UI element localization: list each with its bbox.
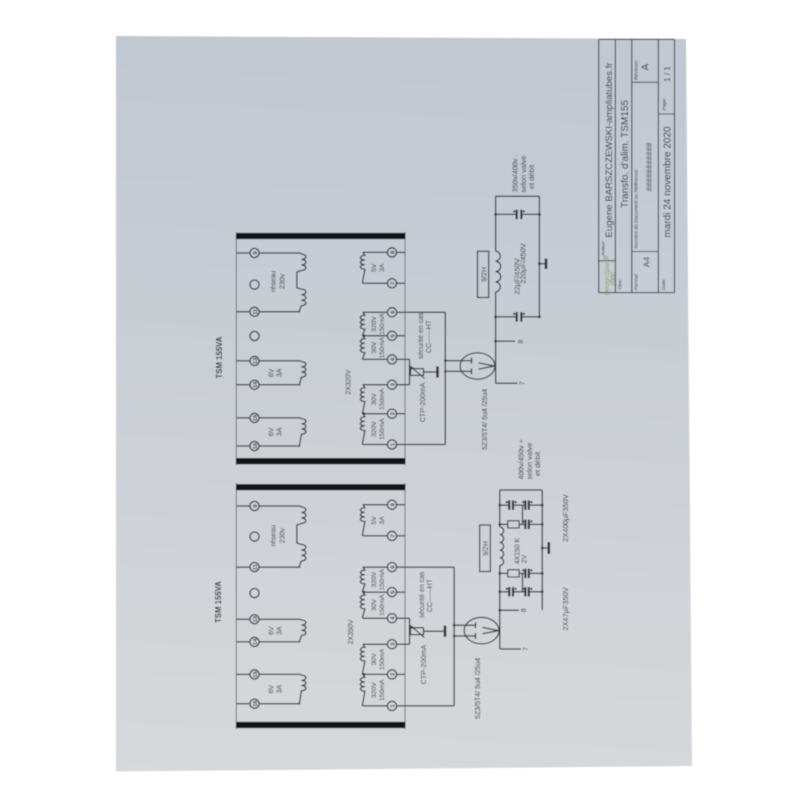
svg-text:CTP-200mA: CTP-200mA [418, 383, 427, 423]
svg-text:CC——HT: CC——HT [427, 578, 434, 612]
svg-text:150mA: 150mA [379, 336, 386, 358]
svg-text:6V: 6V [269, 427, 276, 436]
svg-text:mardi 24 novembre 2020: mardi 24 novembre 2020 [663, 126, 674, 238]
svg-text:11: 11 [253, 309, 259, 315]
svg-text:11: 11 [253, 564, 259, 570]
svg-text:###########: ########### [645, 142, 654, 191]
svg-text:6V: 6V [269, 684, 276, 693]
svg-text:15: 15 [253, 671, 259, 677]
svg-text:3A: 3A [277, 626, 284, 635]
svg-text:Page:: Page: [662, 97, 668, 110]
svg-text:8: 8 [518, 340, 525, 344]
svg-text:7: 7 [390, 534, 396, 537]
svg-text:150mA: 150mA [379, 679, 386, 701]
svg-text:30V: 30V [371, 599, 378, 612]
svg-text:2: 2 [390, 673, 396, 676]
svg-text:150mA: 150mA [379, 388, 386, 410]
svg-text:Numéro du Document ou Référenc: Numéro du Document ou Référence: [634, 168, 640, 249]
svg-text:3A: 3A [277, 427, 284, 436]
svg-text:30V: 30V [371, 653, 378, 666]
svg-text:5: 5 [390, 591, 396, 594]
svg-text:6: 6 [390, 566, 396, 569]
svg-text:6V: 6V [269, 368, 276, 377]
svg-text:6V: 6V [269, 626, 276, 635]
svg-text:5Z3/5T4/ 5u4 /25u4: 5Z3/5T4/ 5u4 /25u4 [475, 658, 482, 719]
svg-text:3A: 3A [379, 263, 386, 272]
svg-text:150mA: 150mA [379, 594, 386, 616]
svg-text:1: 1 [390, 704, 396, 707]
svg-text:8: 8 [521, 608, 528, 612]
svg-text:2X400µF350V: 2X400µF350V [561, 494, 570, 541]
svg-text:9/2H: 9/2H [481, 267, 488, 282]
svg-text:sécurité en cas: sécurité en cas [419, 571, 426, 618]
svg-text:320V: 320V [371, 316, 378, 332]
svg-text:DesignSpark: DesignSpark [604, 258, 611, 295]
svg-text:réseau: réseau [271, 525, 278, 547]
svg-text:2X47µF350V: 2X47µF350V [561, 587, 570, 630]
svg-text:150mA: 150mA [379, 648, 386, 670]
svg-text:320V: 320V [371, 682, 378, 698]
svg-text:5: 5 [390, 334, 396, 337]
svg-text:Révision:: Révision: [634, 59, 640, 80]
svg-text:2X350V: 2X350V [348, 619, 355, 644]
svg-text:320V: 320V [371, 421, 378, 437]
svg-text:150mA: 150mA [379, 313, 386, 335]
svg-text:30V: 30V [371, 393, 378, 406]
svg-text:Transfo. d'alim. TSM155: Transfo. d'alim. TSM155 [620, 100, 631, 209]
svg-text:Eugene BARSZCZEWSKI-ampliatube: Eugene BARSZCZEWSKI-ampliatubes.fr [604, 62, 615, 238]
svg-text:150mA: 150mA [379, 568, 386, 590]
svg-text:5V: 5V [371, 263, 378, 272]
svg-text:A4: A4 [642, 257, 652, 268]
svg-text:220µF/450V: 220µF/450V [519, 243, 528, 283]
svg-text:3A: 3A [277, 684, 284, 693]
svg-text:8: 8 [390, 503, 396, 506]
svg-text:5V: 5V [371, 516, 378, 525]
svg-text:TSM 155VA: TSM 155VA [215, 336, 224, 378]
svg-text:7: 7 [390, 282, 396, 285]
svg-text:2V: 2V [522, 554, 529, 563]
svg-text:Date:: Date: [661, 278, 667, 290]
svg-text:16: 16 [253, 443, 259, 449]
svg-text:sécurité en cas: sécurité en cas [418, 312, 425, 359]
svg-text:réseau: réseau [271, 271, 278, 293]
svg-text:Titre:: Titre: [618, 278, 624, 290]
svg-text:5Z3/5T4/ 5u4 /25u4: 5Z3/5T4/ 5u4 /25u4 [482, 389, 489, 450]
svg-text:3: 3 [390, 383, 396, 386]
svg-text:A: A [641, 63, 652, 70]
svg-text:320V: 320V [371, 571, 378, 587]
svg-text:2X320V: 2X320V [346, 369, 353, 394]
svg-text:7: 7 [520, 381, 527, 385]
svg-text:30V: 30V [371, 341, 378, 354]
svg-text:CTP-200mA: CTP-200mA [419, 645, 428, 685]
svg-text:6: 6 [390, 311, 396, 314]
svg-text:16: 16 [253, 701, 259, 707]
svg-text:150mA: 150mA [379, 418, 386, 440]
svg-text:3A: 3A [379, 516, 386, 525]
svg-text:9: 9 [253, 251, 259, 254]
svg-text:15: 15 [253, 415, 259, 421]
svg-text:14: 14 [253, 381, 259, 388]
svg-text:230v: 230v [279, 528, 286, 544]
svg-text:7: 7 [523, 647, 530, 651]
svg-text:3A: 3A [277, 368, 284, 377]
svg-text:14: 14 [253, 638, 259, 645]
svg-text:et débit: et débit [527, 165, 536, 189]
svg-text:2: 2 [390, 412, 396, 415]
svg-text:8: 8 [390, 251, 396, 254]
svg-text:Format:: Format: [634, 273, 640, 290]
svg-text:TSM 155VA: TSM 155VA [214, 581, 223, 623]
svg-text:1: 1 [390, 443, 396, 446]
svg-text:9: 9 [253, 504, 259, 507]
svg-text:230v: 230v [279, 273, 286, 289]
svg-text:CC——HT: CC——HT [426, 319, 433, 353]
svg-text:Auteur:: Auteur: [601, 240, 607, 257]
svg-text:13: 13 [253, 616, 259, 622]
svg-text:et débit: et débit [533, 452, 542, 476]
svg-text:9/2H: 9/2H [483, 541, 490, 556]
svg-text:2000: 2000 [611, 272, 617, 287]
svg-text:4X150 K: 4X150 K [515, 537, 522, 564]
svg-text:13: 13 [253, 358, 259, 364]
svg-text:1 / 1: 1 / 1 [663, 66, 672, 82]
svg-text:3: 3 [390, 643, 396, 646]
